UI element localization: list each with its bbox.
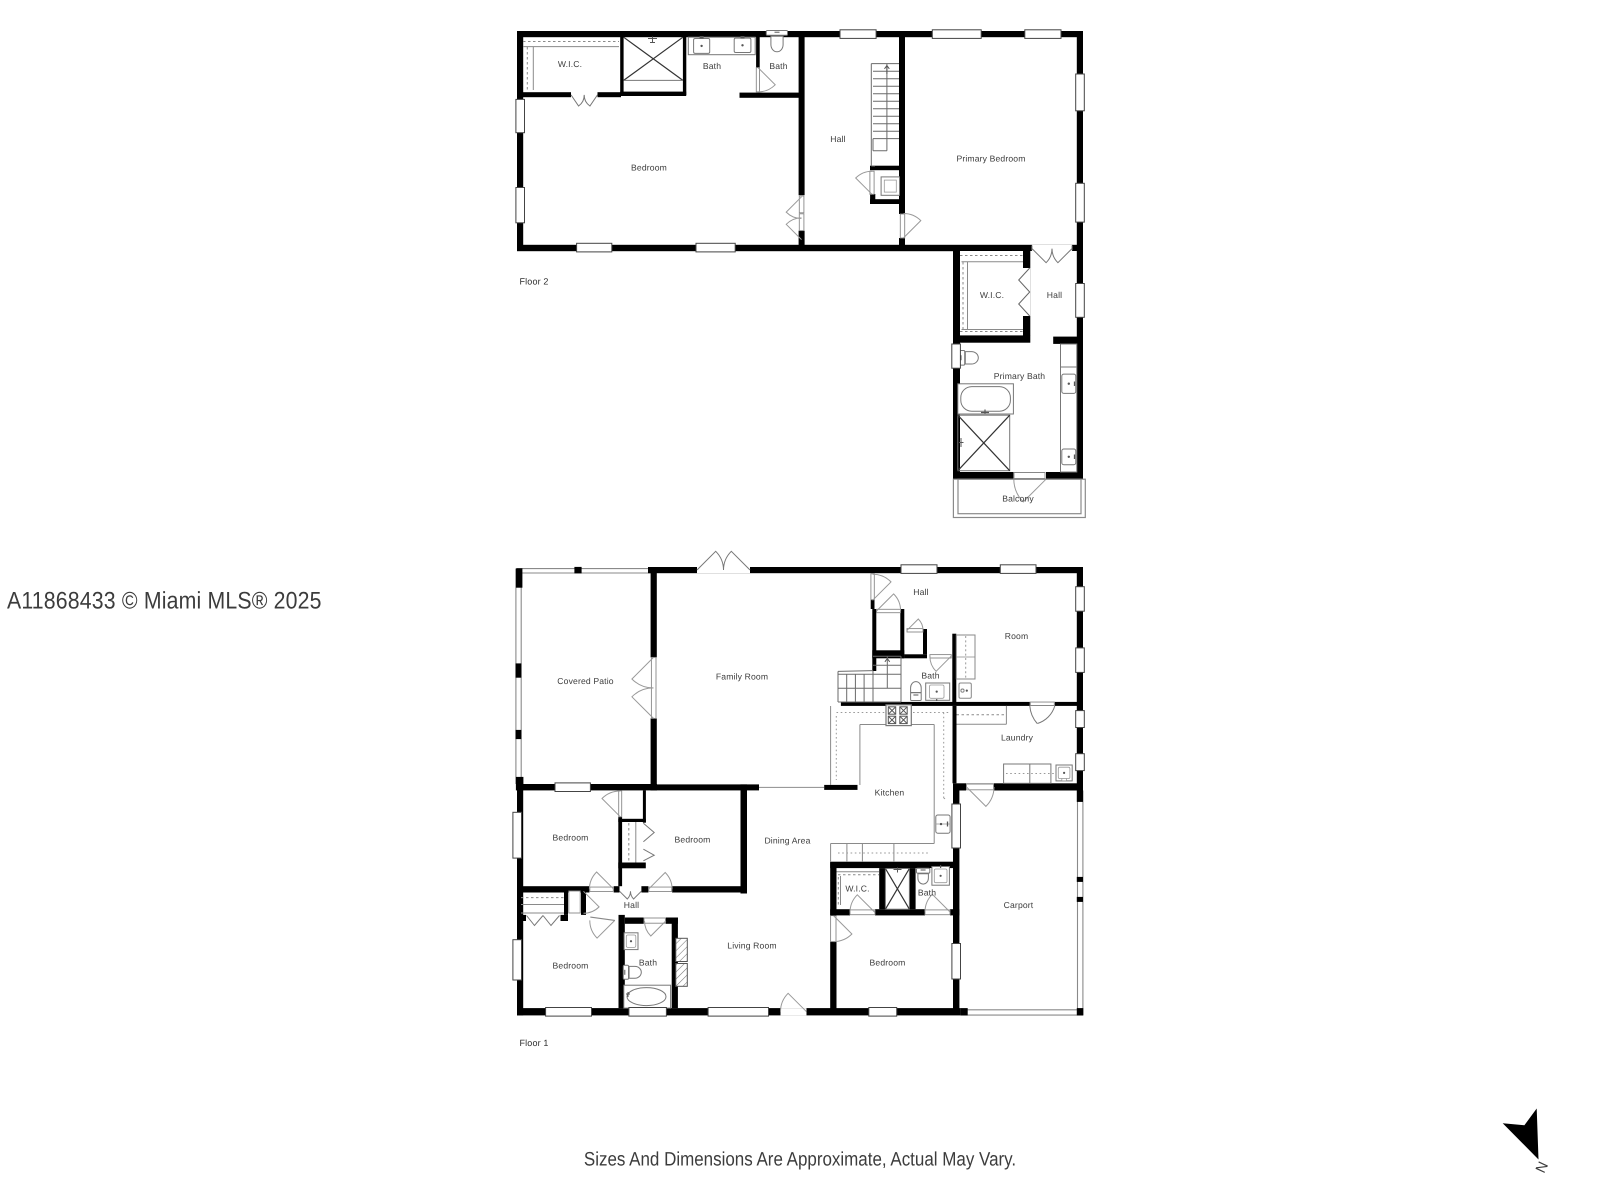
- svg-text:Balcony: Balcony: [1002, 493, 1034, 503]
- svg-text:Dining Area: Dining Area: [764, 835, 810, 845]
- svg-text:Bedroom: Bedroom: [631, 163, 667, 173]
- svg-text:Room: Room: [1005, 631, 1029, 641]
- svg-text:Bath: Bath: [769, 61, 787, 71]
- svg-text:N: N: [1533, 1159, 1552, 1175]
- svg-text:Bath: Bath: [921, 670, 939, 680]
- svg-text:Laundry: Laundry: [1001, 733, 1034, 743]
- svg-text:Primary Bedroom: Primary Bedroom: [956, 153, 1025, 163]
- svg-text:Floor 1: Floor 1: [520, 1038, 549, 1048]
- svg-text:Floor 2: Floor 2: [520, 276, 549, 286]
- svg-text:Carport: Carport: [1004, 900, 1034, 910]
- svg-text:W.I.C.: W.I.C.: [558, 59, 582, 69]
- svg-text:Bath: Bath: [703, 61, 721, 71]
- svg-text:W.I.C.: W.I.C.: [980, 290, 1004, 300]
- svg-text:Sizes And Dimensions Are Appro: Sizes And Dimensions Are Approximate, Ac…: [584, 1149, 1016, 1171]
- svg-text:W.I.C.: W.I.C.: [845, 883, 869, 893]
- svg-text:Hall: Hall: [624, 900, 639, 910]
- svg-text:Bedroom: Bedroom: [553, 832, 589, 842]
- svg-text:Hall: Hall: [1047, 290, 1062, 300]
- svg-text:Hall: Hall: [830, 134, 845, 144]
- svg-text:Hall: Hall: [913, 587, 928, 597]
- svg-text:Family Room: Family Room: [716, 671, 768, 681]
- svg-text:Bedroom: Bedroom: [675, 835, 711, 845]
- svg-text:Bath: Bath: [918, 887, 936, 897]
- svg-text:Living Room: Living Room: [727, 940, 776, 950]
- svg-text:Bedroom: Bedroom: [870, 957, 906, 967]
- svg-text:Bath: Bath: [639, 957, 657, 967]
- svg-text:A11868433 © Miami MLS® 2025: A11868433 © Miami MLS® 2025: [7, 588, 322, 615]
- svg-text:Covered Patio: Covered Patio: [557, 676, 613, 686]
- svg-text:Bedroom: Bedroom: [553, 960, 589, 970]
- svg-text:Primary Bath: Primary Bath: [994, 371, 1046, 381]
- svg-text:Kitchen: Kitchen: [875, 787, 905, 797]
